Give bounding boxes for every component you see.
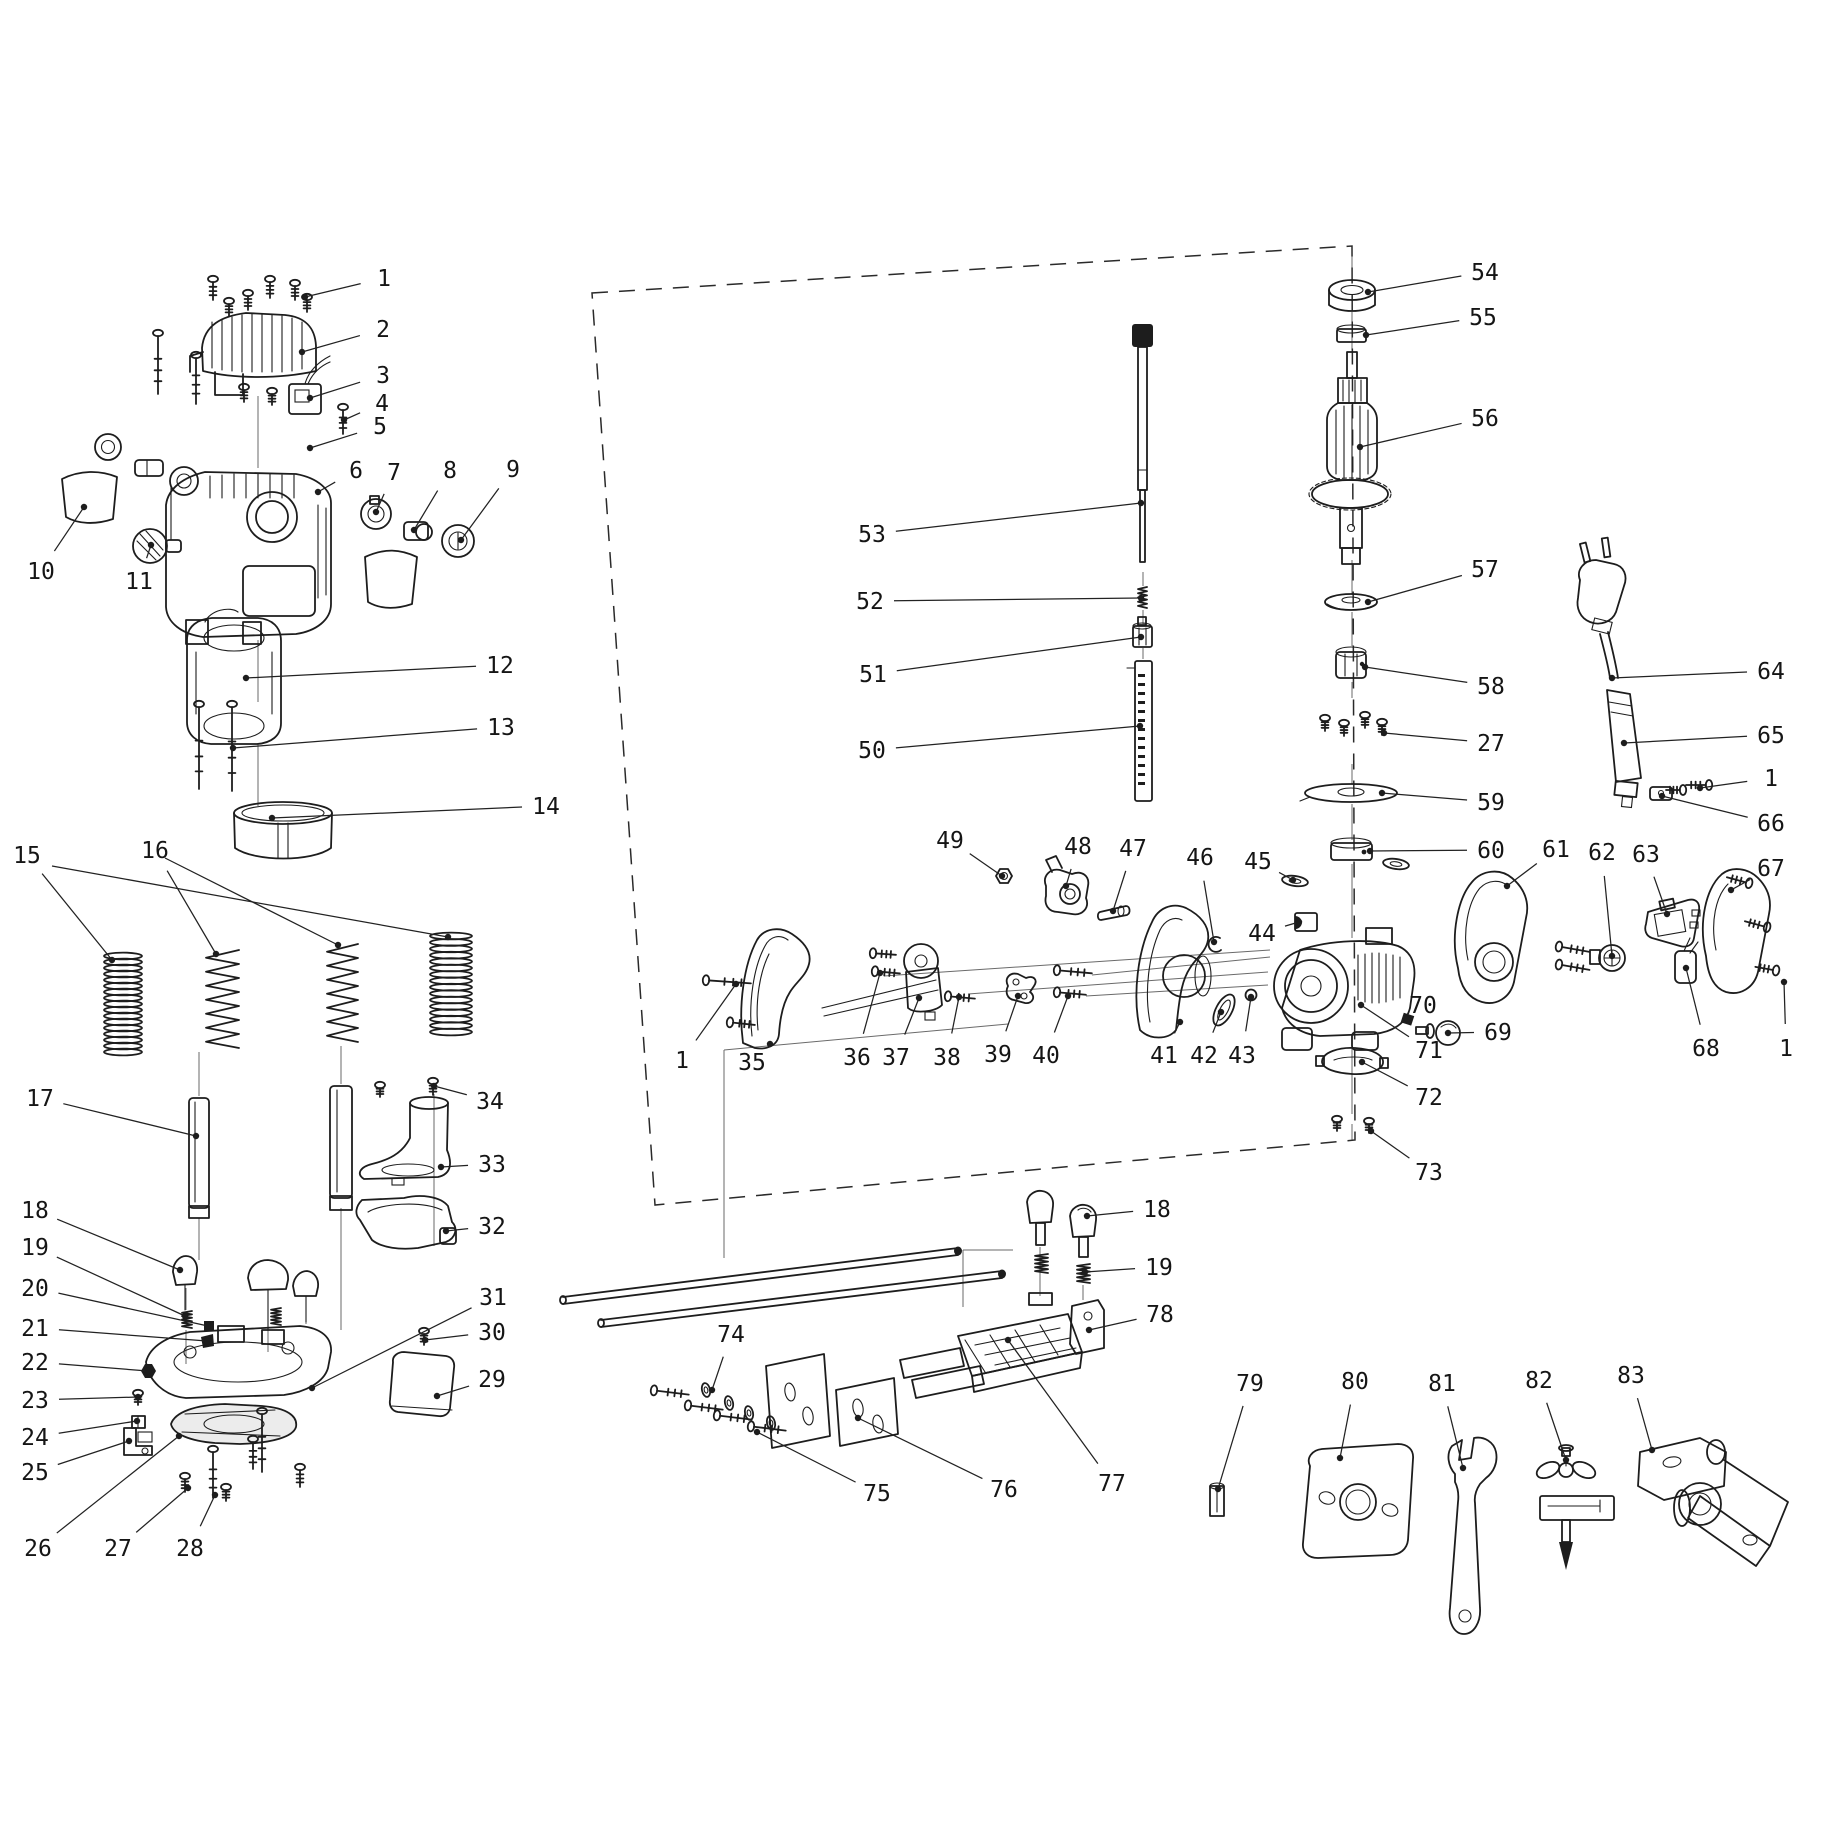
part-number-label: 1: [675, 1048, 689, 1074]
part-number-label: 15: [13, 843, 41, 869]
part-number-label: 28: [176, 1536, 204, 1562]
part-number-label: 36: [843, 1045, 871, 1071]
armature: [1309, 352, 1391, 564]
part-number-label: 57: [1471, 557, 1499, 583]
part-number-label: 45: [1244, 849, 1272, 875]
adjust-knob: [133, 529, 181, 563]
nameplate-right: [365, 551, 417, 608]
part-number-label: 70: [1409, 993, 1437, 1019]
exploded-view-diagram: 1234567891011121314151617181920212223242…: [0, 0, 1823, 1823]
part-number-label: 54: [1471, 260, 1499, 286]
part-number-label: 32: [478, 1214, 506, 1240]
plunge-column-right: [330, 1086, 352, 1210]
part-number-label: 2: [376, 317, 390, 343]
part-number-label: 18: [21, 1198, 49, 1224]
part-number-label: 38: [933, 1045, 961, 1071]
part-number-label: 1: [1779, 1036, 1793, 1062]
screws: [133, 276, 1780, 1501]
handle-grip-right: [1455, 872, 1527, 1003]
part-number-label: 55: [1469, 305, 1497, 331]
brush-cap: [1590, 945, 1625, 971]
part-number-label: 13: [487, 715, 515, 741]
fence-body: [900, 1300, 1104, 1398]
part-number-label: 62: [1588, 840, 1616, 866]
part-number-label: 81: [1428, 1371, 1456, 1397]
part-number-label: 11: [125, 569, 153, 595]
part-number-label: 47: [1119, 836, 1147, 862]
part-number-label: 34: [476, 1089, 504, 1115]
part-number-label: 82: [1525, 1368, 1553, 1394]
part-number-label: 5: [373, 414, 387, 440]
washers: [701, 857, 1410, 1430]
part-number-label: 19: [1145, 1255, 1173, 1281]
part-number-label: 73: [1415, 1160, 1443, 1186]
part-number-label: 80: [1341, 1369, 1369, 1395]
part-number-label: 72: [1415, 1085, 1443, 1111]
part-number-label: 29: [478, 1367, 506, 1393]
fence-knob-2: [1070, 1205, 1096, 1257]
fence-clamp-plate-a: [766, 1354, 830, 1448]
bearing-grommet-set: [95, 434, 198, 495]
nameplate-left: [62, 472, 117, 523]
part-number-label: 20: [21, 1276, 49, 1302]
part-number-label: 53: [858, 522, 886, 548]
part-number-label: 27: [1477, 731, 1505, 757]
leader-lines: [42, 276, 1787, 1533]
part-number-label: 69: [1484, 1020, 1512, 1046]
handle-grip-inner-right: [1136, 906, 1211, 1038]
power-switch: [1645, 899, 1700, 947]
part-number-label: 16: [141, 838, 169, 864]
part-number-label: 31: [479, 1285, 507, 1311]
spindle-nut: [1336, 647, 1366, 678]
part-number-labels: 1234567891011121314151617181920212223242…: [13, 260, 1793, 1562]
trammel-point-82: [1534, 1445, 1614, 1570]
part-number-label: 14: [532, 794, 560, 820]
base-casting: [146, 1326, 331, 1398]
part-number-label: 37: [882, 1045, 910, 1071]
shaft-collar-60: [1331, 838, 1372, 860]
assembly-axes: [186, 246, 1355, 1364]
part-number-label: 56: [1471, 406, 1499, 432]
depth-scale: [1127, 661, 1152, 801]
part-number-label: 19: [21, 1235, 49, 1261]
part-number-label: 78: [1146, 1302, 1174, 1328]
part-number-label: 44: [1248, 921, 1276, 947]
part-number-label: 24: [21, 1425, 49, 1451]
part-number-label: 42: [1190, 1043, 1218, 1069]
clamp-ring: [234, 802, 332, 859]
gasket-42: [1209, 991, 1239, 1029]
part-number-label: 10: [27, 559, 55, 585]
plunge-column-left: [189, 1098, 209, 1218]
dust-chute-upper: [360, 1097, 450, 1185]
part-number-label: 8: [443, 458, 457, 484]
part-number-label: 74: [717, 1322, 745, 1348]
coil-springs: [104, 587, 1147, 1328]
part-number-label: 6: [349, 458, 363, 484]
template-guide-plate-80: [1303, 1444, 1413, 1558]
part-number-label: 64: [1757, 659, 1785, 685]
base-knob-b: [248, 1260, 288, 1330]
part-number-label: 30: [478, 1320, 506, 1346]
dust-chute-lower: [356, 1196, 456, 1249]
part-number-label: 25: [21, 1460, 49, 1486]
part-number-label: 9: [506, 457, 520, 483]
part-number-label: 67: [1757, 856, 1785, 882]
part-number-label: 39: [984, 1042, 1012, 1068]
part-number-label: 41: [1150, 1043, 1178, 1069]
part-number-label: 48: [1064, 834, 1092, 860]
base-knob-a: [173, 1256, 197, 1310]
part-number-label: 35: [738, 1050, 766, 1076]
part-number-label: 61: [1542, 837, 1570, 863]
motor-top-cap: [190, 313, 316, 395]
part-number-label: 27: [104, 1536, 132, 1562]
roller-guide-83: [1638, 1438, 1788, 1566]
part-number-label: 52: [856, 589, 884, 615]
part-number-label: 75: [863, 1481, 891, 1507]
part-number-label: 43: [1228, 1043, 1256, 1069]
fence-knob-1: [1027, 1191, 1053, 1245]
switch-module: [289, 356, 330, 414]
part-number-label: 12: [486, 653, 514, 679]
guide-rail-1: [560, 1247, 962, 1305]
handle-cover-left: [741, 929, 809, 1048]
part-number-label: 66: [1757, 811, 1785, 837]
part-sketches: [62, 280, 1788, 1634]
part-number-label: 3: [376, 363, 390, 389]
part-number-label: 51: [859, 662, 887, 688]
part-number-label: 21: [21, 1316, 49, 1342]
guide-rail-2: [598, 1270, 1006, 1328]
part-number-label: 22: [21, 1350, 49, 1376]
part-number-label: 46: [1186, 845, 1214, 871]
part-number-label: 50: [858, 738, 886, 764]
part-number-label: 33: [478, 1152, 506, 1178]
depth-stop-rod: [1132, 324, 1153, 562]
sole-plate: [171, 1404, 296, 1444]
part-number-label: 71: [1415, 1038, 1443, 1064]
part-number-label: 63: [1632, 842, 1660, 868]
part-number-label: 60: [1477, 838, 1505, 864]
part-number-label: 40: [1032, 1043, 1060, 1069]
part-number-label: 26: [24, 1536, 52, 1562]
part-number-label: 49: [936, 828, 964, 854]
base-knob-c: [293, 1271, 318, 1322]
contact-lever: [1007, 974, 1036, 1003]
part-number-label: 18: [1143, 1197, 1171, 1223]
part-number-label: 79: [1236, 1371, 1264, 1397]
part-number-label: 77: [1098, 1471, 1126, 1497]
exploded-parts-diagram-page: 1234567891011121314151617181920212223242…: [0, 0, 1823, 1823]
open-end-wrench-81: [1448, 1438, 1496, 1634]
part-number-label: 23: [21, 1388, 49, 1414]
part-number-label: 65: [1757, 723, 1785, 749]
part-number-label: 1: [1764, 766, 1778, 792]
part-number-label: 83: [1617, 1363, 1645, 1389]
part-number-label: 17: [26, 1086, 54, 1112]
part-number-label: 7: [387, 460, 401, 486]
template-plate: [390, 1352, 454, 1416]
cord-guard: [1607, 690, 1641, 807]
power-cord-plug: [1578, 538, 1626, 678]
part-number-label: 58: [1477, 674, 1505, 700]
fence-clamp-plate-b: [836, 1378, 898, 1446]
part-number-label: 76: [990, 1477, 1018, 1503]
part-number-label: 59: [1477, 790, 1505, 816]
gear-housing: [1274, 928, 1414, 1050]
part-number-label: 1: [377, 266, 391, 292]
button-8: [404, 522, 432, 540]
part-number-label: 68: [1692, 1036, 1720, 1062]
